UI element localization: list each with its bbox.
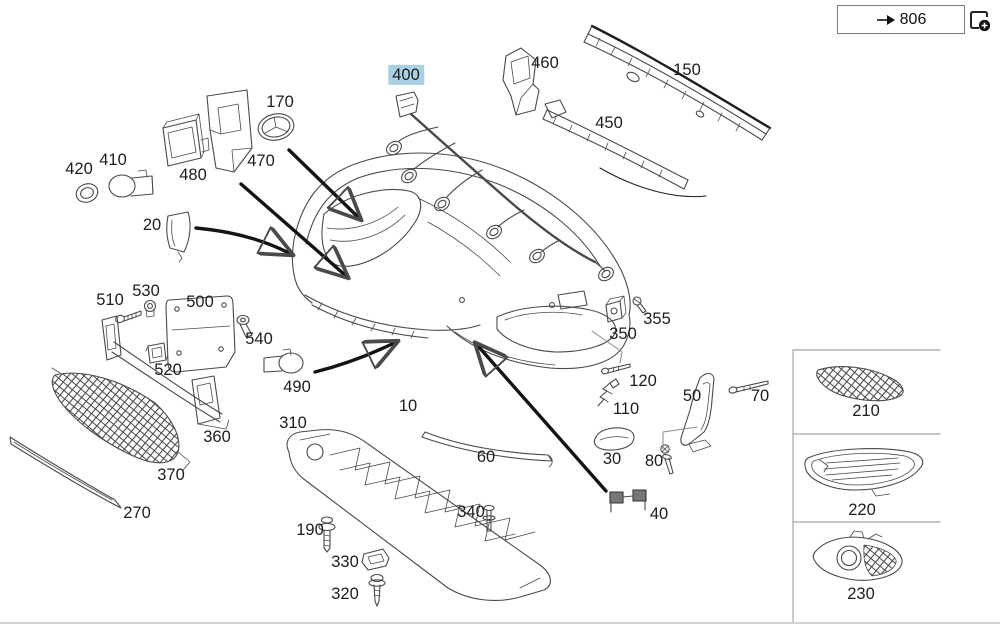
part-callout-520[interactable]: 520 <box>154 361 182 379</box>
part-callout-330[interactable]: 330 <box>331 553 359 571</box>
part-callout-510[interactable]: 510 <box>96 291 124 309</box>
callout-layer: 4004601504501704704804104202051053050054… <box>0 0 1000 629</box>
part-callout-450[interactable]: 450 <box>595 114 623 132</box>
part-callout-370[interactable]: 370 <box>157 466 185 484</box>
part-callout-150[interactable]: 150 <box>673 61 701 79</box>
part-callout-40[interactable]: 40 <box>650 505 668 523</box>
part-callout-210[interactable]: 210 <box>852 402 880 420</box>
part-callout-80[interactable]: 80 <box>645 452 663 470</box>
part-callout-10[interactable]: 10 <box>399 397 417 415</box>
part-callout-470[interactable]: 470 <box>247 152 275 170</box>
part-callout-340[interactable]: 340 <box>457 503 485 521</box>
part-callout-320[interactable]: 320 <box>331 585 359 603</box>
part-callout-230[interactable]: 230 <box>847 585 875 603</box>
part-callout-540[interactable]: 540 <box>245 330 273 348</box>
part-callout-360[interactable]: 360 <box>203 428 231 446</box>
part-callout-110[interactable]: 110 <box>613 400 639 418</box>
part-callout-20[interactable]: 20 <box>143 216 161 234</box>
part-callout-420[interactable]: 420 <box>65 160 93 178</box>
part-callout-480[interactable]: 480 <box>179 166 207 184</box>
part-callout-30[interactable]: 30 <box>603 450 621 468</box>
part-callout-400[interactable]: 400 <box>388 65 424 85</box>
part-callout-410[interactable]: 410 <box>99 151 127 169</box>
part-callout-355[interactable]: 355 <box>643 310 671 328</box>
part-callout-70[interactable]: 70 <box>751 387 769 405</box>
part-callout-60[interactable]: 60 <box>477 448 495 466</box>
part-callout-310[interactable]: 310 <box>279 414 307 432</box>
part-callout-50[interactable]: 50 <box>683 387 701 405</box>
part-callout-500[interactable]: 500 <box>186 293 214 311</box>
part-callout-350[interactable]: 350 <box>609 325 637 343</box>
part-callout-170[interactable]: 170 <box>266 93 294 111</box>
part-callout-190[interactable]: 190 <box>296 521 324 539</box>
part-callout-120[interactable]: 120 <box>629 372 657 390</box>
part-callout-460[interactable]: 460 <box>531 54 559 72</box>
part-callout-220[interactable]: 220 <box>848 501 876 519</box>
parts-diagram-page: 806 <box>0 0 1000 629</box>
part-callout-530[interactable]: 530 <box>132 282 160 300</box>
part-callout-490[interactable]: 490 <box>283 378 311 396</box>
part-callout-270[interactable]: 270 <box>123 504 151 522</box>
